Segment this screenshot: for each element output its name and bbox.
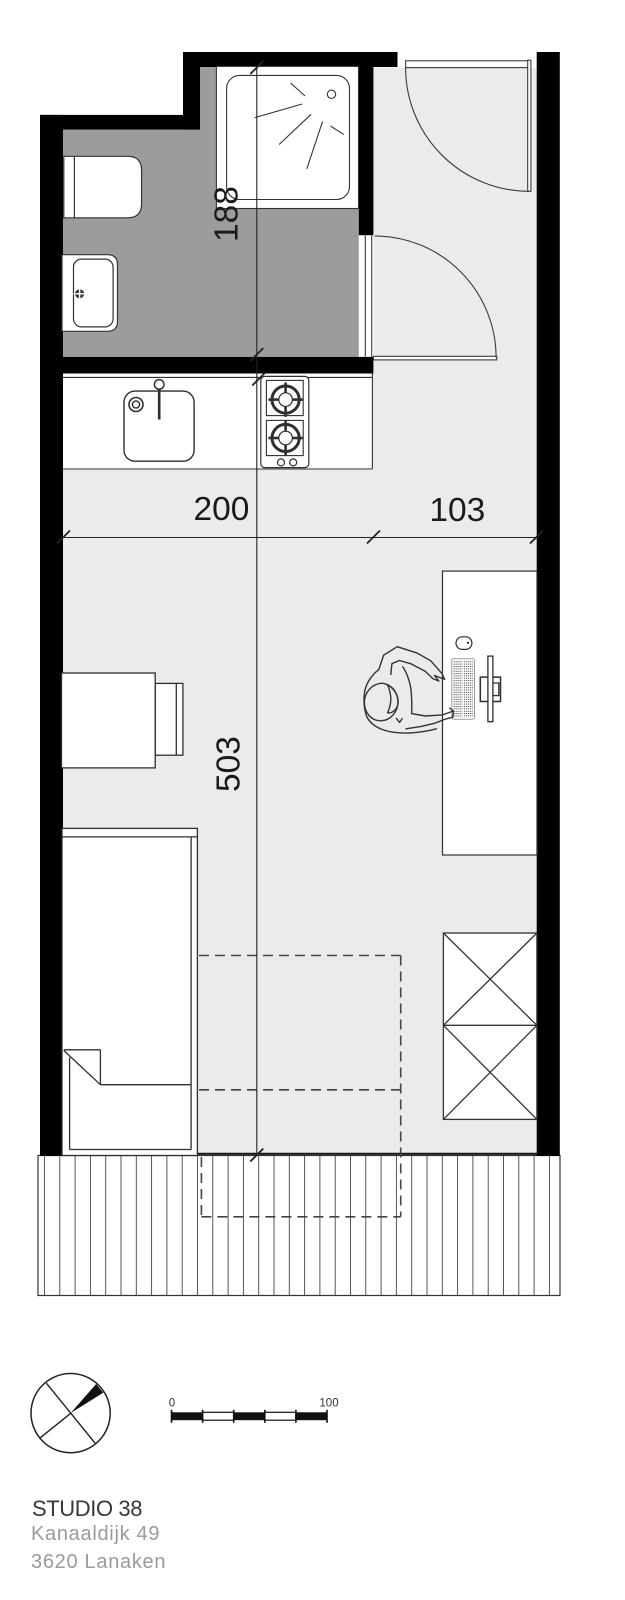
svg-text:188: 188: [209, 186, 246, 242]
svg-text:200: 200: [194, 491, 250, 528]
svg-text:503: 503: [211, 736, 248, 792]
svg-text:Kanaaldijk 49: Kanaaldijk 49: [31, 1523, 160, 1545]
svg-text:STUDIO 38: STUDIO 38: [32, 1496, 142, 1521]
svg-text:103: 103: [429, 492, 485, 529]
svg-text:0: 0: [169, 1398, 175, 1410]
svg-text:3620 Lanaken: 3620 Lanaken: [31, 1551, 166, 1573]
svg-text:100: 100: [319, 1398, 338, 1410]
